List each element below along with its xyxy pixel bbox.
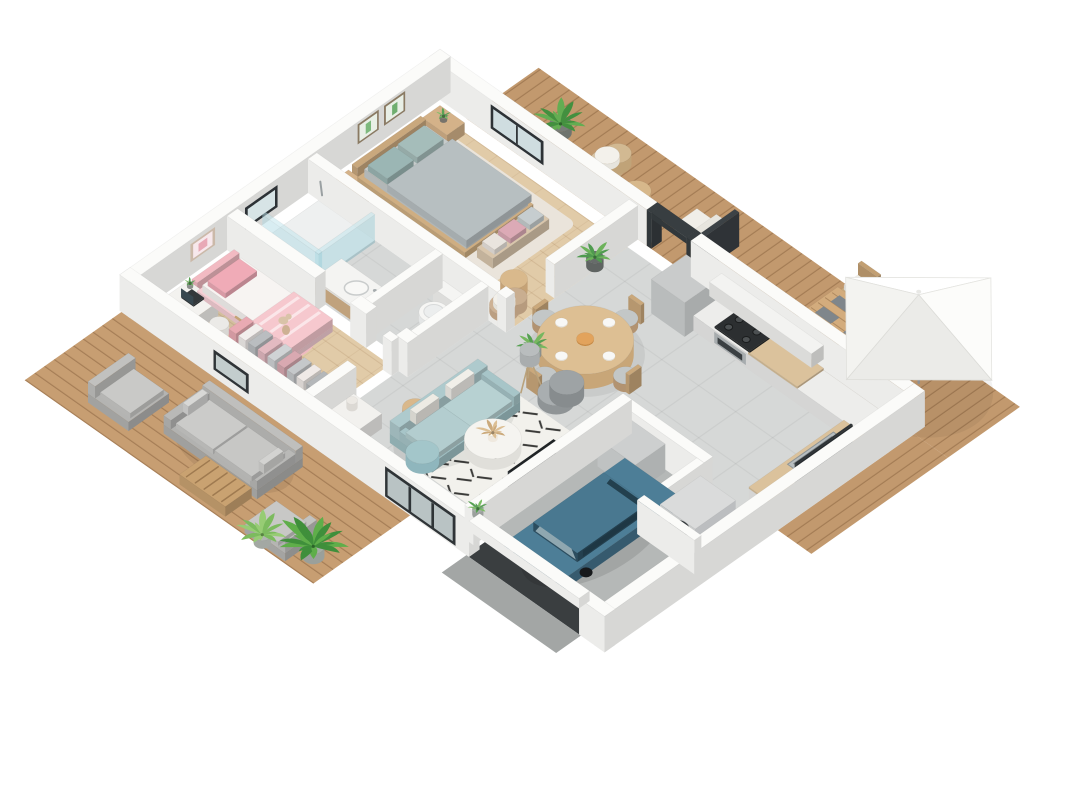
scene-svg bbox=[0, 0, 1066, 800]
dining-center-dish bbox=[576, 332, 593, 345]
sliding-door-mullion-2 bbox=[431, 502, 434, 528]
armchair-back bbox=[549, 370, 584, 408]
hall-dresser-lamp bbox=[346, 396, 357, 411]
sliding-door-mullion-1 bbox=[408, 486, 411, 512]
burner-2 bbox=[725, 324, 733, 330]
dining-plate-2 bbox=[603, 351, 615, 361]
plush-toy-2 bbox=[282, 325, 290, 335]
floor-lamp-shade bbox=[520, 342, 540, 367]
dining-plate-1 bbox=[603, 318, 615, 328]
parasol-tip bbox=[916, 290, 921, 294]
window-master-mullion bbox=[516, 125, 518, 144]
wall-kids-right-a bbox=[383, 331, 399, 376]
dining-plate-3 bbox=[555, 351, 567, 361]
coffee-table bbox=[464, 419, 521, 470]
dining-plate-4 bbox=[555, 318, 567, 328]
burner-4 bbox=[742, 336, 750, 342]
plush-toy-head bbox=[286, 314, 292, 320]
wall-bed-right-stub bbox=[497, 286, 515, 332]
vanity-sink bbox=[344, 281, 368, 295]
pouf-blue bbox=[406, 440, 440, 474]
wall-bath-south-c bbox=[396, 328, 418, 378]
floor-plan-3d-render bbox=[0, 0, 1066, 800]
car-wheel-front bbox=[580, 567, 593, 577]
